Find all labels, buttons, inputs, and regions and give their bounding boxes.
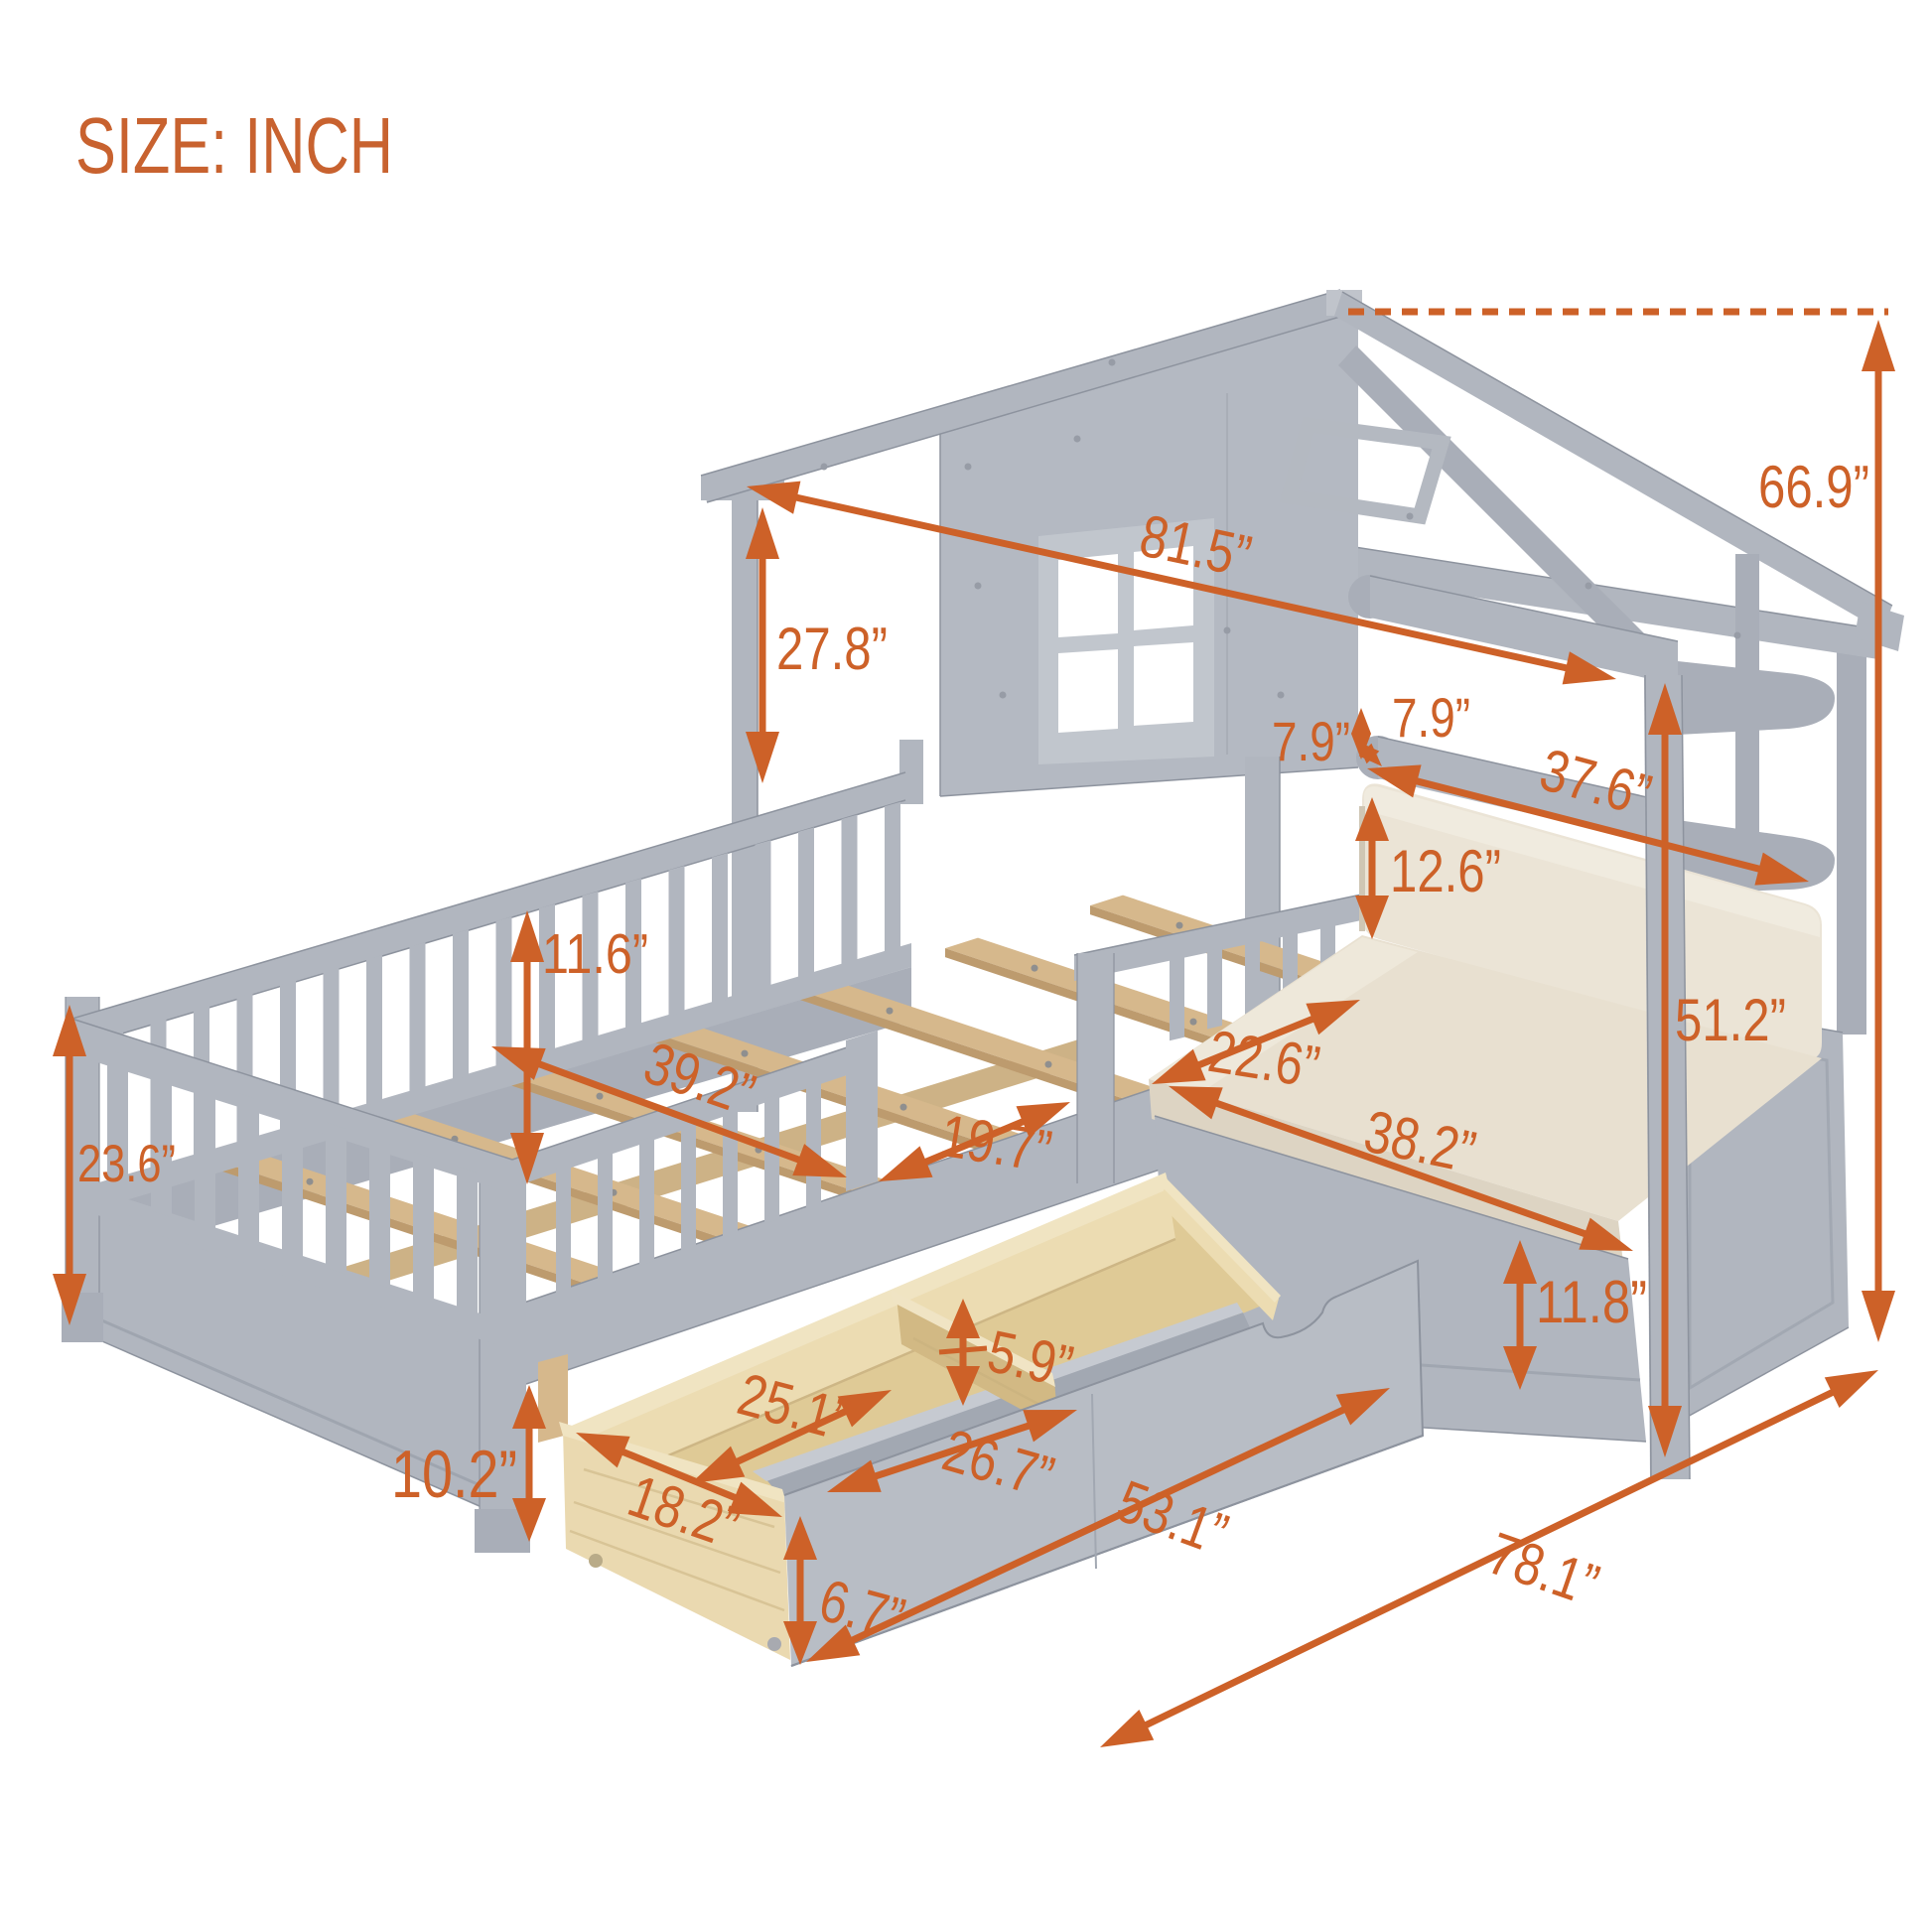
svg-text:23.6”: 23.6”	[77, 1135, 176, 1193]
svg-text:7.9”: 7.9”	[1272, 710, 1350, 772]
svg-text:27.8”: 27.8”	[776, 616, 888, 682]
svg-text:51.2”: 51.2”	[1675, 987, 1786, 1053]
svg-text:7.9”: 7.9”	[1392, 686, 1470, 749]
svg-text:SIZE: INCH: SIZE: INCH	[75, 101, 393, 190]
svg-text:12.6”: 12.6”	[1390, 838, 1501, 904]
svg-text:10.2”: 10.2”	[391, 1437, 517, 1512]
svg-text:11.6”: 11.6”	[542, 922, 648, 986]
svg-text:66.9”: 66.9”	[1758, 454, 1869, 520]
svg-text:11.8”: 11.8”	[1536, 1269, 1647, 1335]
